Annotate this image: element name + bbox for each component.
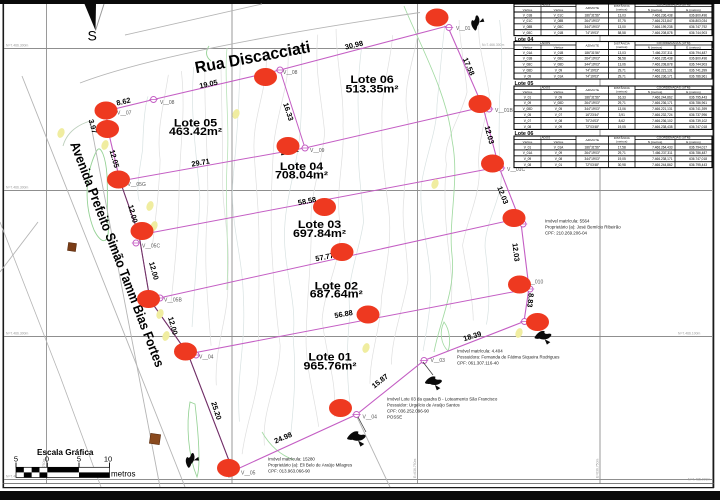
svg-text:E=636.750m: E=636.750m bbox=[413, 459, 417, 478]
svg-text:636.786,961: 636.786,961 bbox=[689, 101, 707, 105]
svg-text:7.466.221,131: 7.466.221,131 bbox=[652, 68, 673, 72]
svg-text:13,06: 13,06 bbox=[618, 63, 626, 67]
svg-text:72°03′48″: 72°03′48″ bbox=[585, 125, 600, 129]
svg-text:S: S bbox=[88, 28, 97, 44]
svg-text:CPF: 036.252.096-90: CPF: 036.252.096-90 bbox=[387, 409, 430, 414]
svg-text:LADOS: LADOS bbox=[540, 136, 551, 140]
svg-text:AZIMUTE: AZIMUTE bbox=[585, 88, 599, 92]
svg-text:72°03′48″: 72°03′48″ bbox=[585, 163, 600, 167]
svg-text:V_08: V_08 bbox=[524, 125, 532, 129]
svg-text:636.800,496: 636.800,496 bbox=[689, 57, 707, 61]
svg-text:V_08: V_08 bbox=[524, 163, 532, 167]
svg-text:V_07: V_07 bbox=[555, 113, 563, 117]
svg-text:636.737,996: 636.737,996 bbox=[689, 113, 707, 117]
svg-text:29,71: 29,71 bbox=[618, 151, 626, 155]
svg-text:186°31′56″: 186°31′56″ bbox=[585, 51, 601, 55]
svg-text:V_09: V_09 bbox=[555, 68, 563, 72]
svg-text:Vértice: Vértice bbox=[523, 8, 533, 12]
svg-text:COORDENADAS (UTM): COORDENADAS (UTM) bbox=[657, 3, 691, 7]
svg-text:697.84m²: 697.84m² bbox=[293, 229, 346, 240]
svg-text:636.741,399: 636.741,399 bbox=[689, 107, 707, 111]
svg-text:463.42m²: 463.42m² bbox=[169, 127, 222, 138]
svg-text:V_09: V_09 bbox=[524, 101, 532, 105]
svg-text:Proprietário (a): Eli Belo de: Proprietário (a): Eli Belo de Araújo Mil… bbox=[268, 463, 353, 468]
svg-text:V_09: V_09 bbox=[524, 74, 532, 78]
svg-text:V_08D: V_08D bbox=[554, 63, 564, 67]
svg-text:70°24′03″: 70°24′03″ bbox=[585, 119, 600, 123]
svg-text:3,91: 3,91 bbox=[619, 113, 625, 117]
svg-text:7.466.264,433: 7.466.264,433 bbox=[652, 145, 673, 149]
svg-text:AZIMUTE: AZIMUTE bbox=[585, 6, 599, 10]
svg-text:AZIMUTE: AZIMUTE bbox=[585, 44, 599, 48]
svg-text:0: 0 bbox=[45, 455, 49, 464]
svg-text:636.800,496: 636.800,496 bbox=[689, 13, 707, 17]
svg-text:LADOS: LADOS bbox=[540, 41, 551, 45]
svg-text:Vértice: Vértice bbox=[554, 45, 564, 49]
svg-text:636.744,903: 636.744,903 bbox=[689, 31, 707, 35]
svg-text:N=7.465.900m: N=7.465.900m bbox=[688, 478, 711, 482]
svg-text:Vértice: Vértice bbox=[554, 140, 564, 144]
svg-text:V__04: V__04 bbox=[199, 354, 214, 360]
svg-text:636.741,399: 636.741,399 bbox=[689, 68, 707, 72]
svg-text:V_01: V_01 bbox=[524, 145, 532, 149]
svg-text:V_08: V_08 bbox=[555, 119, 563, 123]
svg-text:V_08B: V_08B bbox=[523, 25, 533, 29]
svg-text:186°31′56″: 186°31′56″ bbox=[585, 145, 601, 149]
svg-text:V__04: V__04 bbox=[363, 414, 378, 420]
svg-text:7.466.236,171: 7.466.236,171 bbox=[652, 74, 673, 78]
svg-text:264°19′03″: 264°19′03″ bbox=[585, 19, 601, 23]
svg-text:E=636.750m: E=636.750m bbox=[596, 459, 600, 478]
svg-text:V_08C: V_08C bbox=[523, 63, 533, 67]
svg-text:13,03: 13,03 bbox=[618, 13, 626, 17]
svg-text:CPF: 061.307.116-40: CPF: 061.307.116-40 bbox=[457, 361, 499, 366]
svg-text:N (metros): N (metros) bbox=[648, 90, 663, 94]
svg-text:7.466.238,438: 7.466.238,438 bbox=[652, 125, 673, 129]
svg-text:V__05B: V__05B bbox=[164, 297, 182, 303]
svg-text:74°19′03″: 74°19′03″ bbox=[585, 74, 600, 78]
svg-text:POSSE: POSSE bbox=[387, 415, 402, 420]
svg-text:74°19′03″: 74°19′03″ bbox=[585, 68, 600, 72]
svg-text:19,05: 19,05 bbox=[618, 125, 626, 129]
svg-text:V_08C: V_08C bbox=[523, 31, 533, 35]
svg-text:V_01: V_01 bbox=[555, 163, 563, 167]
svg-text:Proprietário (a): José Bemício: Proprietário (a): José Bemício Ribeirão bbox=[545, 225, 621, 230]
svg-text:7.466.208,878: 7.466.208,878 bbox=[652, 31, 673, 35]
svg-text:344°19′03″: 344°19′03″ bbox=[585, 107, 601, 111]
svg-text:636.794,487: 636.794,487 bbox=[689, 51, 707, 55]
svg-text:29,71: 29,71 bbox=[618, 74, 626, 78]
svg-text:186°31′56″: 186°31′56″ bbox=[585, 13, 601, 17]
svg-text:636.747,018: 636.747,018 bbox=[689, 125, 707, 129]
svg-text:E (metros): E (metros) bbox=[686, 8, 700, 12]
svg-text:Imóvel matrícula: 5564: Imóvel matrícula: 5564 bbox=[545, 219, 590, 224]
svg-text:V__08: V__08 bbox=[160, 100, 175, 106]
svg-text:V_01B: V_01B bbox=[554, 51, 564, 55]
svg-text:E (metros): E (metros) bbox=[686, 90, 700, 94]
svg-text:CPF: 210.269.206-04: CPF: 210.269.206-04 bbox=[545, 231, 588, 236]
svg-text:V_09: V_09 bbox=[555, 151, 563, 155]
svg-text:V_01B: V_01B bbox=[523, 57, 533, 61]
svg-text:7.466.235,438: 7.466.235,438 bbox=[652, 57, 673, 61]
svg-text:7.466.237,311: 7.466.237,311 bbox=[652, 151, 672, 155]
svg-text:V_01B: V_01B bbox=[554, 31, 564, 35]
svg-text:E (metros): E (metros) bbox=[686, 140, 700, 144]
svg-text:264°19′03″: 264°19′03″ bbox=[585, 101, 601, 105]
svg-text:264°19′03″: 264°19′03″ bbox=[585, 151, 601, 155]
svg-text:V__01B: V__01B bbox=[495, 108, 513, 114]
svg-text:7.466.236,438: 7.466.236,438 bbox=[652, 13, 673, 17]
svg-text:19,05: 19,05 bbox=[618, 157, 626, 161]
svg-text:Possuidor: Urgelcio de Araújo: Possuidor: Urgelcio de Araújo Santos bbox=[387, 403, 461, 408]
svg-text:7.466.232,724: 7.466.232,724 bbox=[652, 113, 673, 117]
svg-text:V_01A: V_01A bbox=[523, 151, 533, 155]
svg-text:636.794,017: 636.794,017 bbox=[689, 145, 707, 149]
svg-text:N=7.466.300m: N=7.466.300m bbox=[6, 331, 29, 335]
svg-text:LADOS: LADOS bbox=[540, 3, 551, 7]
svg-text:29,71: 29,71 bbox=[618, 101, 626, 105]
svg-text:Vértice: Vértice bbox=[554, 90, 564, 94]
svg-text:N (metros): N (metros) bbox=[648, 140, 663, 144]
svg-text:Vértice: Vértice bbox=[523, 45, 533, 49]
svg-text:58,58: 58,58 bbox=[618, 57, 626, 61]
svg-text:7.466.236,102: 7.466.236,102 bbox=[652, 119, 673, 123]
svg-text:(metros): (metros) bbox=[616, 140, 627, 144]
svg-text:V_05: V_05 bbox=[555, 107, 563, 111]
svg-text:10: 10 bbox=[104, 455, 112, 464]
svg-text:Vértice: Vértice bbox=[554, 8, 564, 12]
svg-text:N (metros): N (metros) bbox=[648, 8, 663, 12]
svg-text:29,71: 29,71 bbox=[618, 68, 626, 72]
svg-text:636.795,443: 636.795,443 bbox=[689, 95, 707, 99]
svg-text:N=7.466.300m: N=7.466.300m bbox=[6, 43, 29, 47]
svg-text:Vértice: Vértice bbox=[523, 90, 533, 94]
svg-text:V_08: V_08 bbox=[555, 157, 563, 161]
svg-text:7.466.244,862: 7.466.244,862 bbox=[652, 163, 673, 167]
svg-text:V_09: V_09 bbox=[524, 157, 532, 161]
svg-text:V__07: V__07 bbox=[117, 110, 132, 116]
svg-text:N=7.466.100m: N=7.466.100m bbox=[678, 332, 701, 336]
svg-text:5: 5 bbox=[77, 455, 81, 464]
svg-text:V__05G: V__05G bbox=[128, 182, 146, 188]
svg-text:CPF: 013.963.066-90: CPF: 013.963.066-90 bbox=[268, 469, 311, 474]
svg-text:V__05C: V__05C bbox=[142, 243, 160, 249]
svg-text:LADOS: LADOS bbox=[540, 86, 551, 90]
svg-text:V_08D: V_08D bbox=[554, 101, 564, 105]
svg-text:636.795,443: 636.795,443 bbox=[689, 163, 707, 167]
svg-text:344°19′03″: 344°19′03″ bbox=[585, 63, 601, 67]
svg-text:264°19′03″: 264°19′03″ bbox=[585, 57, 601, 61]
svg-text:636.786,961: 636.786,961 bbox=[689, 74, 707, 78]
svg-text:7.466.244,862: 7.466.244,862 bbox=[652, 95, 673, 99]
svg-text:V_01C: V_01C bbox=[523, 19, 533, 23]
svg-text:V_01A: V_01A bbox=[554, 74, 564, 78]
svg-text:V_05: V_05 bbox=[524, 113, 532, 117]
svg-text:Imóvel Lote 03 da quadra B - L: Imóvel Lote 03 da quadra B - Loteamento … bbox=[387, 397, 498, 402]
svg-text:V_09: V_09 bbox=[555, 125, 563, 129]
svg-text:965.76m²: 965.76m² bbox=[303, 361, 356, 372]
svg-text:17,58: 17,58 bbox=[618, 145, 626, 149]
svg-text:V_08B: V_08B bbox=[554, 19, 564, 23]
svg-text:V_08D: V_08D bbox=[523, 68, 533, 72]
svg-text:V_07: V_07 bbox=[524, 119, 532, 123]
svg-text:636.739,102: 636.739,102 bbox=[689, 119, 707, 123]
svg-text:7.466.236,171: 7.466.236,171 bbox=[652, 101, 673, 105]
svg-text:N (metros): N (metros) bbox=[648, 45, 663, 49]
svg-text:30,98: 30,98 bbox=[618, 163, 626, 167]
svg-text:636.747,018: 636.747,018 bbox=[689, 157, 707, 161]
svg-text:V__09: V__09 bbox=[310, 148, 325, 154]
svg-text:metros: metros bbox=[111, 470, 135, 479]
svg-text:186°31′56″: 186°31′56″ bbox=[585, 95, 601, 99]
svg-text:636.744,903: 636.744,903 bbox=[689, 63, 707, 67]
svg-text:344°19′03″: 344°19′03″ bbox=[585, 25, 601, 29]
svg-text:13,06: 13,06 bbox=[618, 107, 626, 111]
svg-text:7.466.208,878: 7.466.208,878 bbox=[652, 63, 673, 67]
svg-text:687.64m²: 687.64m² bbox=[310, 289, 363, 300]
svg-text:5: 5 bbox=[14, 455, 18, 464]
svg-text:N=7.466.300m: N=7.466.300m bbox=[6, 185, 29, 189]
svg-text:13,00: 13,00 bbox=[618, 25, 626, 29]
svg-text:13,03: 13,03 bbox=[618, 51, 626, 55]
svg-text:V_08C: V_08C bbox=[554, 25, 564, 29]
svg-text:V_01B: V_01B bbox=[523, 13, 533, 17]
svg-text:8,62: 8,62 bbox=[619, 119, 625, 123]
svg-text:(metros): (metros) bbox=[616, 45, 627, 49]
svg-text:7.466.221,131: 7.466.221,131 bbox=[652, 107, 673, 111]
svg-text:8.83: 8.83 bbox=[525, 293, 535, 308]
svg-text:636.803,034: 636.803,034 bbox=[689, 19, 707, 23]
svg-text:Imóvel matrícula: 15280: Imóvel matrícula: 15280 bbox=[268, 457, 315, 462]
svg-text:7.466.199,238: 7.466.199,238 bbox=[652, 25, 673, 29]
svg-text:V_01: V_01 bbox=[524, 95, 532, 99]
svg-text:7.466.213,847: 7.466.213,847 bbox=[652, 19, 673, 23]
svg-text:V_01C: V_01C bbox=[554, 13, 564, 17]
svg-text:7.466.238,171: 7.466.238,171 bbox=[652, 157, 673, 161]
svg-text:V_08C: V_08C bbox=[554, 57, 564, 61]
svg-text:57,75: 57,75 bbox=[618, 19, 626, 23]
svg-text:Imóvel matrícula: 4.404: Imóvel matrícula: 4.404 bbox=[457, 349, 503, 354]
svg-text:(metros): (metros) bbox=[616, 90, 627, 94]
svg-text:74°19′03″: 74°19′03″ bbox=[585, 31, 600, 35]
svg-text:7.466.237,311: 7.466.237,311 bbox=[652, 51, 672, 55]
svg-text:V_01A: V_01A bbox=[523, 51, 533, 55]
svg-text:V__05: V__05 bbox=[241, 470, 256, 476]
svg-text:58,58: 58,58 bbox=[618, 31, 626, 35]
svg-text:Possuidora: Fernanda de Fátima: Possuidora: Fernanda de Fátima Siqueira … bbox=[457, 355, 560, 360]
svg-text:344°19′03″: 344°19′03″ bbox=[585, 157, 601, 161]
svg-text:V_08D: V_08D bbox=[523, 107, 533, 111]
svg-text:(metros): (metros) bbox=[616, 8, 627, 12]
svg-text:AZIMUTE: AZIMUTE bbox=[585, 138, 599, 142]
svg-text:V__03: V__03 bbox=[431, 358, 446, 364]
svg-text:E (metros): E (metros) bbox=[686, 45, 700, 49]
svg-text:636.747,792: 636.747,792 bbox=[689, 25, 707, 29]
svg-text:V_01A: V_01A bbox=[554, 145, 564, 149]
svg-text:16°23′44″: 16°23′44″ bbox=[585, 113, 600, 117]
svg-text:V__08: V__08 bbox=[283, 70, 298, 76]
svg-text:V__01: V__01 bbox=[456, 26, 471, 32]
svg-text:Vértice: Vértice bbox=[523, 140, 533, 144]
svg-text:708.04m²: 708.04m² bbox=[275, 170, 328, 181]
svg-text:513.35m²: 513.35m² bbox=[345, 84, 398, 95]
svg-text:636.786,487: 636.786,487 bbox=[689, 151, 707, 155]
svg-text:16,33: 16,33 bbox=[618, 95, 626, 99]
svg-text:V_09: V_09 bbox=[555, 95, 563, 99]
